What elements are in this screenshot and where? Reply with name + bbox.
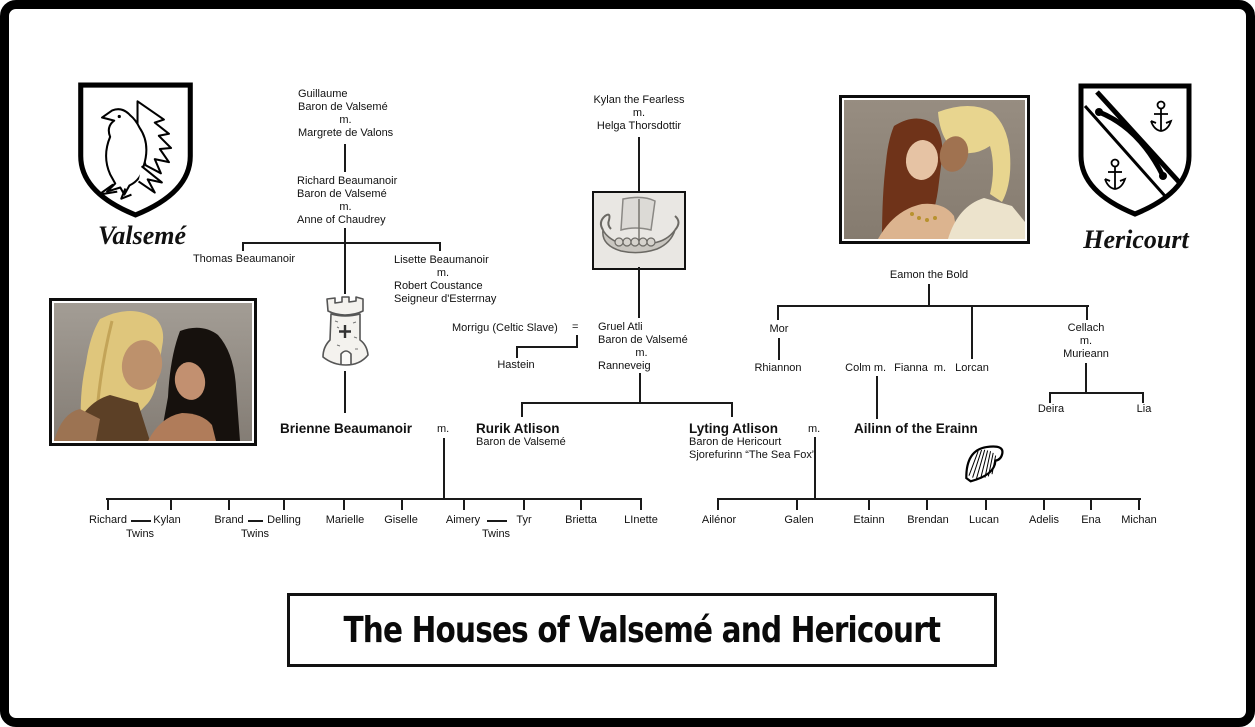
- child-ena: Ena: [1081, 514, 1101, 527]
- child-adelis: Adelis: [1029, 514, 1059, 527]
- connector-line: [1138, 498, 1140, 510]
- twins-dash: [248, 520, 263, 522]
- child-giselle: Giselle: [384, 514, 418, 527]
- person-lorcan: Lorcan: [955, 362, 989, 375]
- connector-line: [283, 498, 285, 510]
- connector-line: [868, 498, 870, 510]
- connector-line: [876, 376, 878, 419]
- twins-dash: [131, 520, 151, 522]
- castle-tower-icon: [317, 293, 375, 371]
- connector-line: [106, 498, 642, 500]
- child-etainn: Etainn: [853, 514, 884, 527]
- child-linette: LInette: [624, 514, 658, 527]
- child-ailenor: Ailénor: [702, 514, 736, 527]
- child-marielle: Marielle: [326, 514, 365, 527]
- connector-line: [344, 242, 346, 294]
- connector-line: [814, 437, 816, 498]
- valseme-raven-shield-icon: [73, 79, 198, 221]
- connector-line: [778, 338, 780, 360]
- child-brietta: Brietta: [565, 514, 597, 527]
- connector-line: [521, 402, 523, 417]
- connector-line: [777, 305, 779, 320]
- person-guillaume: Guillaume Baron de Valsemé m. Margrete d…: [298, 88, 393, 140]
- connector-line: [1043, 498, 1045, 510]
- connector-line: [1085, 363, 1087, 392]
- connector-line: [443, 438, 445, 498]
- connector-line: [439, 242, 441, 251]
- marriage-m-lyting-ailinn: m.: [808, 423, 820, 436]
- hericourt-bow-anchors-shield-icon: [1075, 79, 1195, 221]
- person-richard-beaumanoir: Richard Beaumanoir Baron de Valsemé m. A…: [297, 175, 394, 227]
- house-label-hericourt: Hericourt: [1083, 225, 1188, 255]
- celtic-harp-icon: [957, 439, 1011, 491]
- connector-line: [796, 498, 798, 510]
- person-ailinn-of-the-erainn: Ailinn of the Erainn: [854, 421, 978, 436]
- connector-line: [242, 242, 244, 251]
- connector-line: [523, 498, 525, 510]
- marriage-m-colm-fianna: m.: [874, 362, 886, 375]
- child-delling: Delling: [267, 514, 301, 527]
- connector-line: [640, 498, 642, 510]
- connector-line: [639, 373, 641, 403]
- house-label-valseme: Valsemé: [98, 221, 186, 251]
- child-richard: Richard: [89, 514, 127, 527]
- connector-line: [1049, 392, 1051, 403]
- child-galen: Galen: [784, 514, 813, 527]
- family-tree-chart: Valsemé Hericourt: [0, 0, 1255, 727]
- person-fianna: Fianna: [894, 362, 928, 375]
- twins-label: Twins: [241, 528, 269, 541]
- person-rhiannon: Rhiannon: [754, 362, 801, 375]
- connector-line: [521, 402, 733, 404]
- connector-line: [926, 498, 928, 510]
- person-deira: Deira: [1038, 403, 1064, 416]
- connector-line: [401, 498, 403, 510]
- marriage-m-brienne-rurik: m.: [437, 423, 449, 436]
- child-michan: Michan: [1121, 514, 1156, 527]
- connector-line: [344, 371, 346, 413]
- person-lyting-atlison: Lyting Atlison Baron de Hericourt Sjoref…: [689, 421, 816, 462]
- connector-line: [985, 498, 987, 510]
- connector-line: [344, 228, 346, 242]
- viking-ship-icon: [592, 191, 686, 270]
- connector-line: [463, 498, 465, 510]
- person-colm: Colm: [845, 362, 871, 375]
- connector-line: [242, 242, 441, 244]
- person-eamon-the-bold: Eamon the Bold: [890, 269, 968, 282]
- person-brienne-beaumanoir: Brienne Beaumanoir: [280, 421, 412, 436]
- connector-line: [170, 498, 172, 510]
- connector-line: [1090, 498, 1092, 510]
- child-lucan: Lucan: [969, 514, 999, 527]
- connector-line: [717, 498, 719, 510]
- person-mor: Mor: [770, 323, 789, 336]
- connector-line: [228, 498, 230, 510]
- child-tyr: Tyr: [516, 514, 531, 527]
- connector-line: [638, 267, 640, 318]
- person-cellach: Cellach m. Murieann: [1063, 322, 1109, 361]
- twins-dash: [487, 520, 507, 522]
- child-aimery: Aimery: [446, 514, 480, 527]
- connector-line: [1142, 392, 1144, 403]
- hericourt-couple-photo: [839, 95, 1030, 244]
- chart-title: The Houses of Valsemé and Hericourt: [344, 610, 941, 651]
- connector-line: [107, 498, 109, 510]
- valseme-couple-photo: [49, 298, 257, 446]
- child-brendan: Brendan: [907, 514, 949, 527]
- person-kylan-the-fearless: Kylan the Fearless m. Helga Thorsdottir: [593, 94, 684, 133]
- connector-line: [580, 498, 582, 510]
- connector-line: [516, 346, 578, 348]
- connector-line: [1049, 392, 1144, 394]
- connector-line: [516, 346, 518, 358]
- person-lia: Lia: [1137, 403, 1152, 416]
- connector-line: [777, 305, 1089, 307]
- connector-line: [717, 498, 1141, 500]
- connector-line: [731, 402, 733, 417]
- connector-line: [928, 284, 930, 305]
- child-kylan: Kylan: [153, 514, 181, 527]
- connector-line: [343, 498, 345, 510]
- connector-line: [1086, 305, 1088, 320]
- twins-label: Twins: [126, 528, 154, 541]
- twins-label: Twins: [482, 528, 510, 541]
- person-hastein: Hastein: [497, 359, 534, 372]
- person-gruel-atli: Gruel Atli Baron de Valsemé m. Ranneveig: [598, 321, 685, 373]
- person-rurik-atlison: Rurik Atlison Baron de Valsemé: [476, 421, 566, 449]
- title-box: The Houses of Valsemé and Hericourt: [287, 593, 997, 667]
- connector-line: [344, 144, 346, 172]
- person-thomas-beaumanoir: Thomas Beaumanoir: [193, 253, 295, 266]
- equals-sign: =: [572, 321, 578, 334]
- connector-line: [638, 137, 640, 191]
- person-lisette-beaumanoir: Lisette Beaumanoir m. Robert Coustance S…: [394, 254, 492, 306]
- marriage-m-fianna-lorcan: m.: [934, 362, 946, 375]
- person-morrigu: Morrigu (Celtic Slave): [452, 322, 558, 335]
- connector-line: [971, 305, 973, 359]
- child-brand: Brand: [214, 514, 243, 527]
